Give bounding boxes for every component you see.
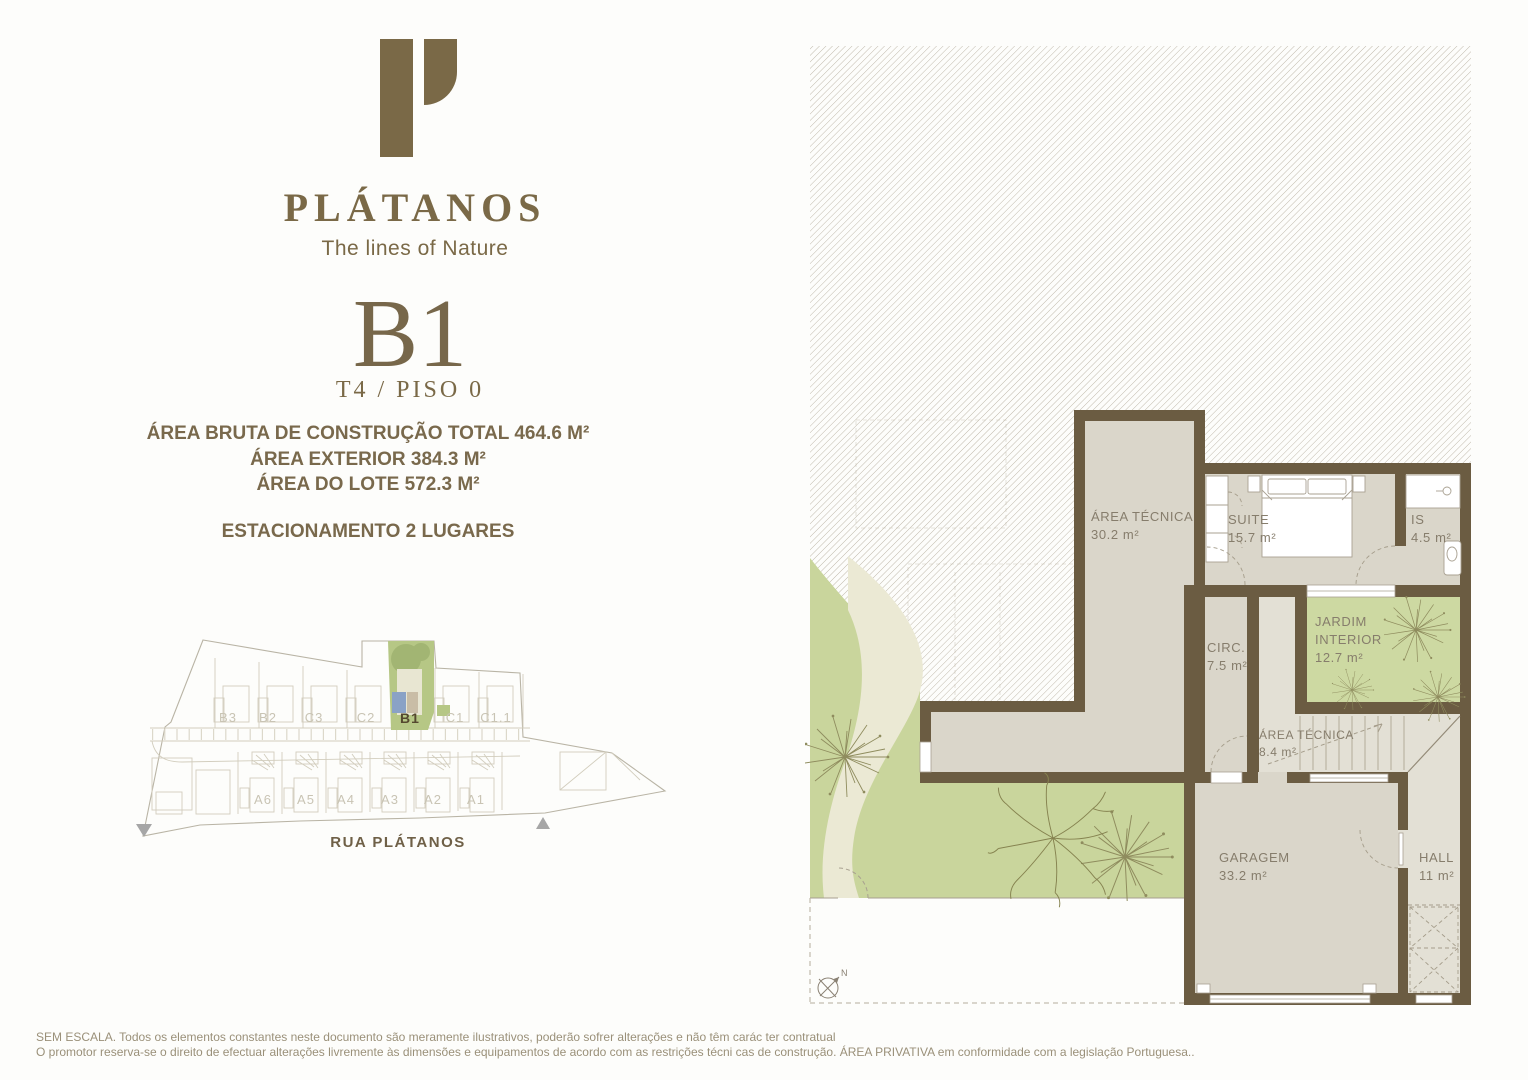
footer-line-2: O promotor reserva-se o direito de efect…	[36, 1045, 1236, 1060]
label-circ-area: 7.5 m²	[1207, 658, 1248, 673]
label-hall-area: 11 m²	[1419, 868, 1454, 883]
unit-code: B1	[285, 288, 535, 380]
brand-tagline: The lines of Nature	[260, 237, 570, 261]
label-is: IS	[1411, 512, 1424, 527]
label-suite-area: 15.7 m²	[1228, 530, 1276, 545]
spec-area-exterior: ÁREA EXTERIOR 384.3 M²	[140, 447, 596, 473]
site-label-c1: C1	[446, 710, 465, 725]
label-hall: HALL	[1419, 850, 1454, 865]
label-suite: SUITE	[1228, 512, 1269, 527]
label-area-tecnica-2-area: 8.4 m²	[1259, 745, 1297, 759]
label-jardim-2: INTERIOR	[1315, 632, 1382, 647]
driveway-boundary	[810, 898, 1184, 1003]
spec-area-lote: ÁREA DO LOTE 572.3 M²	[140, 472, 596, 498]
label-garagem: GARAGEM	[1219, 850, 1290, 865]
label-area-tecnica-1: ÁREA TÉCNICA	[1091, 509, 1193, 524]
footer-line-1: SEM ESCALA. Todos os elementos constante…	[36, 1030, 1236, 1045]
site-label-a5: A5	[297, 792, 315, 807]
site-label-b2: B2	[259, 710, 277, 725]
label-is-area: 4.5 m²	[1411, 530, 1452, 545]
label-circ: CIRC.	[1207, 640, 1245, 655]
label-jardim-area: 12.7 m²	[1315, 650, 1363, 665]
label-area-tecnica-1-area: 30.2 m²	[1091, 527, 1139, 542]
site-label-a1: A1	[467, 792, 485, 807]
spec-area-bruta: ÁREA BRUTA DE CONSTRUÇÃO TOTAL 464.6 M²	[140, 421, 596, 447]
street-label: RUA PLÁTANOS	[258, 834, 538, 851]
wardrobe	[1206, 476, 1228, 562]
label-jardim-1: JARDIM	[1315, 614, 1367, 629]
site-label-a4: A4	[337, 792, 355, 807]
logo-p-bowl-icon	[424, 39, 457, 105]
site-label-a6: A6	[254, 792, 272, 807]
site-plan: B3 B2 C3 C2 B1 C1 C1.1 A6 A5 A4 A3 A2 A1	[125, 623, 681, 865]
site-arrow-right-icon	[536, 817, 550, 829]
unit-subtitle: T4 / PISO 0	[285, 377, 535, 404]
label-garagem-area: 33.2 m²	[1219, 868, 1267, 883]
unit-specs: ÁREA BRUTA DE CONSTRUÇÃO TOTAL 464.6 M² …	[140, 421, 596, 544]
spec-parking: ESTACIONAMENTO 2 LUGARES	[140, 519, 596, 545]
site-label-c2: C2	[357, 710, 376, 725]
floor-plan: ÁREA TÉCNICA 30.2 m² SUITE 15.7 m² IS 4.…	[805, 40, 1475, 1010]
site-label-a2: A2	[424, 792, 442, 807]
site-label-b1: B1	[400, 710, 420, 726]
site-label-c3: C3	[305, 710, 324, 725]
site-label-b3: B3	[219, 710, 237, 725]
compass-icon: N	[818, 968, 848, 998]
compass-north-label: N	[841, 968, 848, 978]
brand-name: PLÁTANOS	[260, 184, 570, 231]
site-label-c11: C1.1	[480, 710, 511, 725]
site-label-a3: A3	[381, 792, 399, 807]
footer-disclaimer: SEM ESCALA. Todos os elementos constante…	[36, 1030, 1236, 1059]
label-area-tecnica-2: ÁREA TÉCNICA	[1259, 727, 1354, 742]
logo-p-stem-icon	[380, 39, 413, 157]
